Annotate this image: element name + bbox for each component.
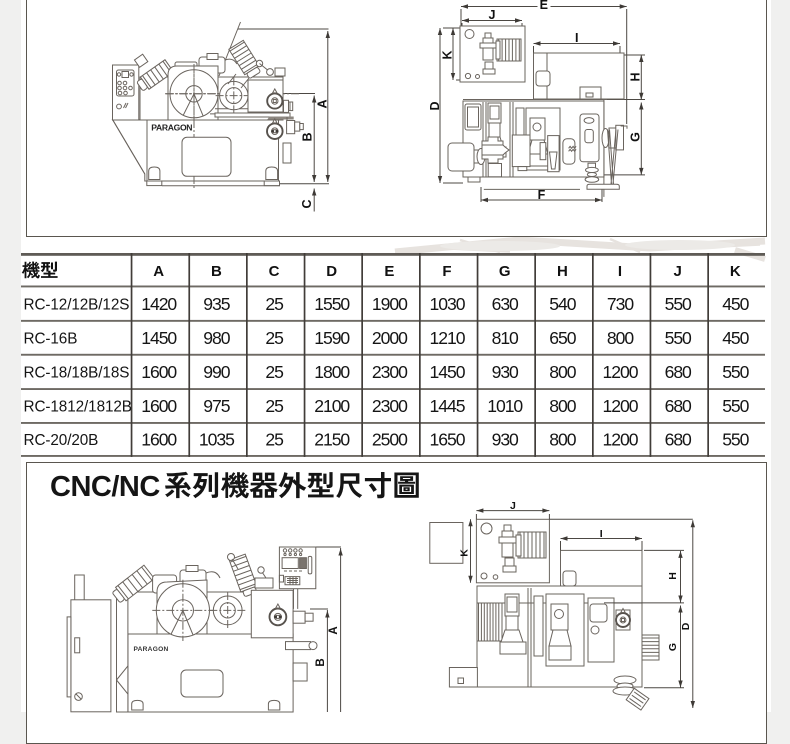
svg-text:K: K bbox=[458, 549, 470, 557]
svg-text:I: I bbox=[600, 528, 603, 540]
svg-text:H: H bbox=[667, 572, 679, 580]
svg-text:D: D bbox=[680, 622, 692, 630]
svg-text:G: G bbox=[667, 643, 679, 651]
svg-text:J: J bbox=[510, 500, 516, 512]
